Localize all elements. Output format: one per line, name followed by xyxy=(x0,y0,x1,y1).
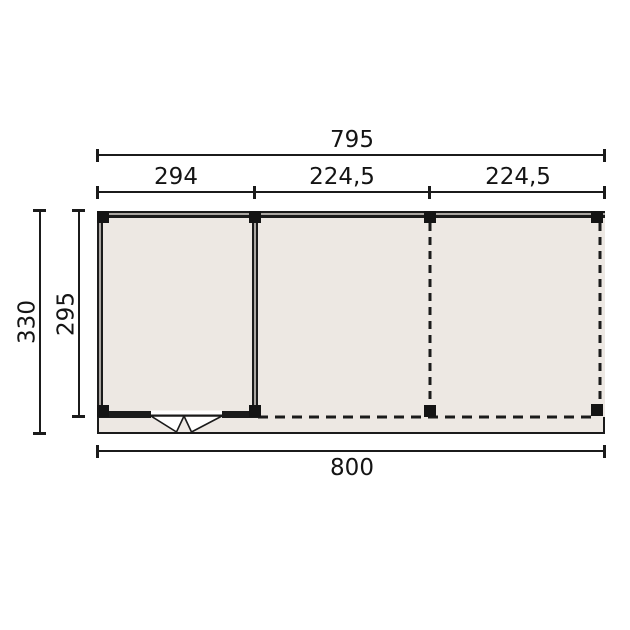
dim-label-top-total: 795 xyxy=(297,129,407,152)
dim-tick xyxy=(253,186,256,199)
dim-tick xyxy=(72,209,85,212)
dim-tick xyxy=(96,149,99,162)
dim-tick xyxy=(96,186,99,199)
wall-left xyxy=(97,211,103,418)
post-bottom-right xyxy=(591,404,603,416)
post-top-mid-2 xyxy=(424,211,436,223)
dim-line-top-total xyxy=(97,154,605,156)
post-top-mid-1 xyxy=(249,211,261,223)
dim-tick xyxy=(428,186,431,199)
dim-tick xyxy=(603,186,606,199)
floor-area xyxy=(97,211,605,418)
dim-label-bay1: 294 xyxy=(121,166,231,189)
dim-tick xyxy=(96,445,99,458)
post-bottom-mid-1 xyxy=(249,405,261,417)
dim-label-bay2: 224,5 xyxy=(287,166,397,189)
dim-line-bays xyxy=(97,191,605,193)
wall-partition xyxy=(252,211,258,418)
dim-label-left-inner: 295 xyxy=(56,292,79,336)
dim-label-bay3: 224,5 xyxy=(463,166,573,189)
post-bottom-left xyxy=(97,405,109,417)
dim-line-bottom-total xyxy=(97,450,605,452)
dim-tick xyxy=(603,149,606,162)
floor-plan-canvas: 795 294 224,5 224,5 330 295 800 xyxy=(0,0,630,630)
dim-tick xyxy=(603,445,606,458)
wall-top-beam xyxy=(97,211,605,218)
post-top-left xyxy=(97,211,109,223)
dim-tick xyxy=(72,415,85,418)
dim-tick xyxy=(33,432,46,435)
dim-label-left-total: 330 xyxy=(17,300,40,344)
post-bottom-mid-2 xyxy=(424,405,436,417)
dim-label-bottom-total: 800 xyxy=(297,457,407,480)
post-top-right xyxy=(591,211,603,223)
dim-tick xyxy=(33,209,46,212)
foundation-strip xyxy=(97,417,605,434)
